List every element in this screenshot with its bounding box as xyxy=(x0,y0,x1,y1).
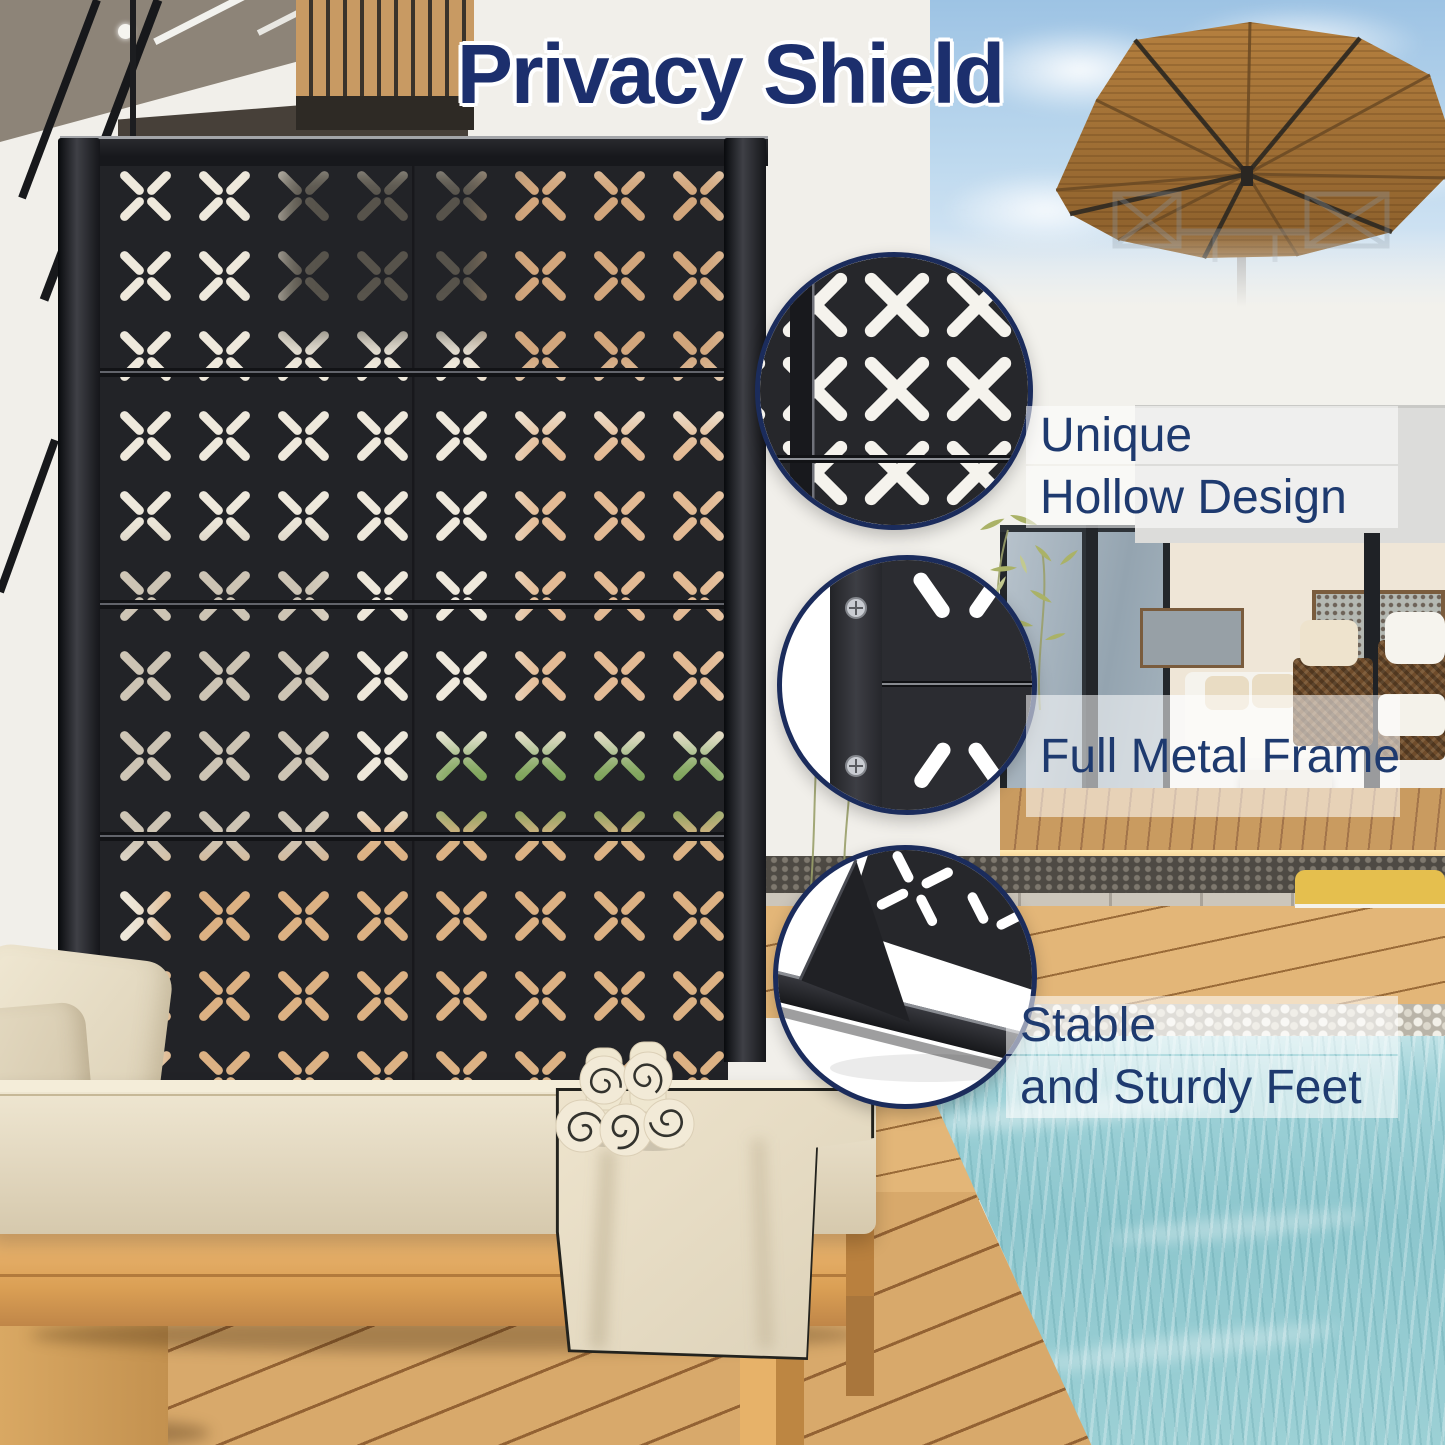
page-title: Privacy Shield xyxy=(360,26,1100,123)
label-strip: Unique xyxy=(1026,406,1398,464)
callout-circle-sturdy-feet xyxy=(773,845,1037,1109)
blanket-fold xyxy=(751,1139,772,1349)
callout-label-line: Stable xyxy=(1006,998,1156,1053)
product-infographic: Unique Hollow Design Full Metal Frame St… xyxy=(0,0,1445,1445)
foot-closeup xyxy=(778,850,1032,1104)
label-strip: Hollow Design xyxy=(1026,466,1398,528)
frame-screws xyxy=(782,560,1032,810)
screen-top-bar xyxy=(60,136,768,166)
callout-label-line: Full Metal Frame xyxy=(1026,729,1400,784)
callout-circle-metal-frame xyxy=(777,555,1037,815)
callout-circle-hollow-design xyxy=(755,252,1033,530)
parapet-fade xyxy=(930,228,1445,318)
label-strip: Stable xyxy=(1006,996,1398,1054)
hollow-pattern-closeup xyxy=(760,257,1028,525)
armchair-pillow xyxy=(1300,620,1358,666)
daybed-leg xyxy=(846,1296,874,1396)
slot-window xyxy=(1140,608,1244,668)
callout-label-line: Unique xyxy=(1026,408,1192,463)
rolled-towels xyxy=(548,1036,718,1176)
label-strip: Full Metal Frame xyxy=(1026,695,1400,817)
label-strip: and Sturdy Feet xyxy=(1006,1056,1398,1118)
wicker-sofa-back-cushion xyxy=(1385,612,1445,664)
privacy-screen-panel xyxy=(96,162,728,1100)
callout-label-line: and Sturdy Feet xyxy=(1006,1060,1362,1115)
sun-lounger xyxy=(1295,870,1445,904)
blanket-fold xyxy=(590,1149,616,1350)
callout-label-line: Hollow Design xyxy=(1026,470,1347,525)
top-bar-highlight xyxy=(60,136,768,139)
